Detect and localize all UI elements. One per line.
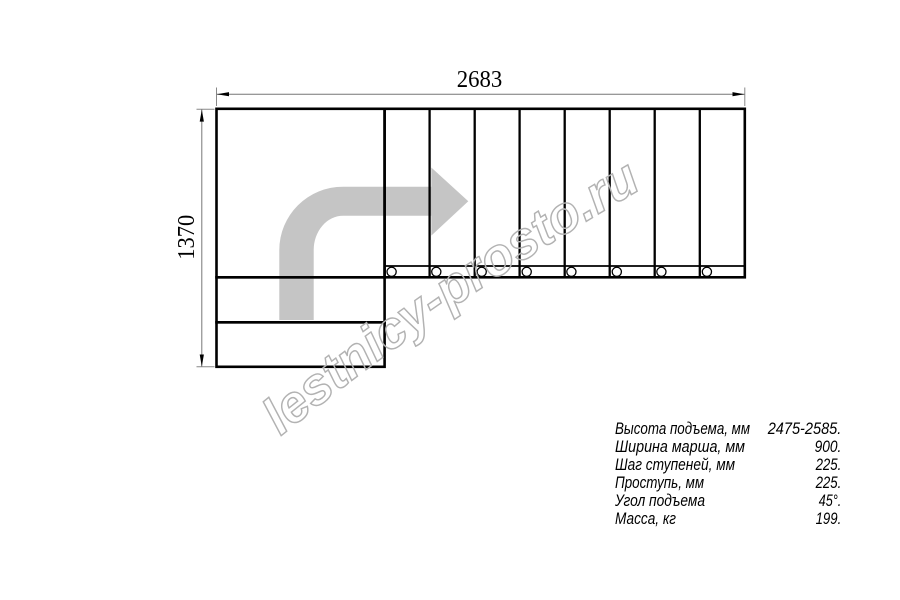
svg-text:Проступь, мм: Проступь, мм bbox=[615, 473, 704, 492]
svg-text:2683: 2683 bbox=[457, 66, 503, 93]
svg-text:Высота подъема, мм: Высота подъема, мм bbox=[615, 419, 750, 438]
svg-text:45°.: 45°. bbox=[819, 491, 842, 510]
svg-text:Масса, кг: Масса, кг bbox=[615, 509, 676, 528]
svg-text:1370: 1370 bbox=[173, 215, 200, 260]
svg-text:225.: 225. bbox=[815, 455, 841, 474]
svg-text:Ширина марша, мм: Ширина марша, мм bbox=[615, 437, 745, 456]
svg-text:900.: 900. bbox=[815, 437, 842, 456]
svg-text:2475-2585.: 2475-2585. bbox=[767, 419, 841, 438]
svg-text:225.: 225. bbox=[815, 473, 841, 492]
svg-text:199.: 199. bbox=[816, 509, 842, 528]
svg-text:Шаг ступеней, мм: Шаг ступеней, мм bbox=[615, 455, 735, 474]
svg-text:Угол подъема: Угол подъема bbox=[614, 491, 705, 510]
